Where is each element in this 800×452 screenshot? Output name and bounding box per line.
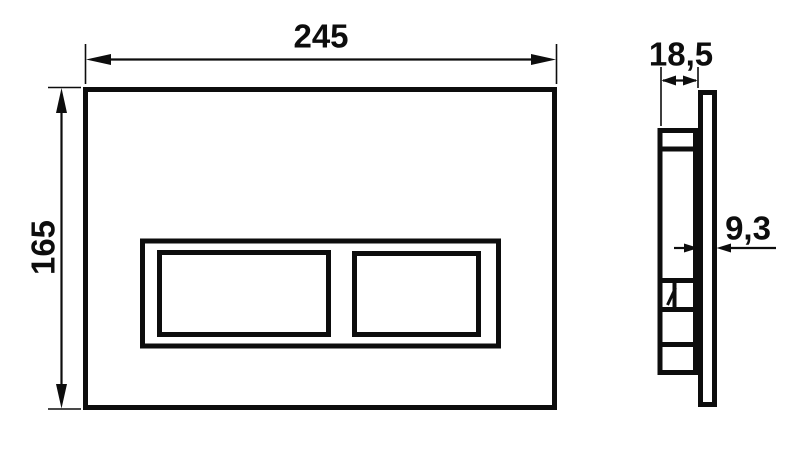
mechanism-housing [658,131,698,373]
plate-profile [701,93,715,405]
technical-drawing-canvas: 245 165 [0,0,800,452]
height-arrow-top-icon [56,88,67,113]
depth-arrow-left-icon [662,76,677,86]
flush-plate-drawing: 245 165 [0,0,800,452]
depth-dimension-label: 18,5 [649,36,713,73]
height-dimension-label: 165 [25,220,62,275]
side-view: 18,5 9,3 [649,36,776,405]
height-dimension: 165 [25,88,82,410]
thickness-dimension-label: 9,3 [725,210,771,247]
right-button-opening [355,254,479,335]
front-view: 245 165 [25,18,557,410]
height-arrow-bottom-icon [56,384,67,409]
mechanism-outline [660,131,696,373]
width-dimension: 245 [86,18,557,85]
width-arrow-left-icon [86,54,111,65]
width-dimension-label: 245 [293,18,348,55]
left-button-opening [160,253,329,335]
depth-arrow-right-icon [683,76,698,86]
width-arrow-right-icon [531,54,556,65]
